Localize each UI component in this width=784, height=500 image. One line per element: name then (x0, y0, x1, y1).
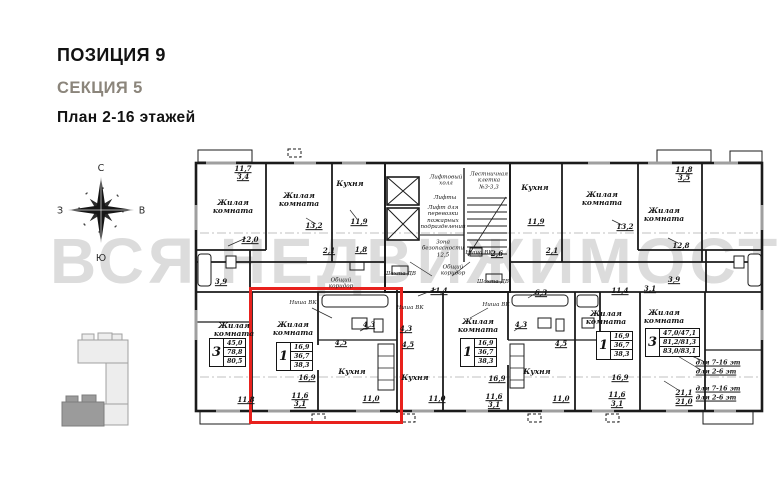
plan-label: для 7-16 эт (696, 387, 741, 394)
apartment-area-value: 45,0 (224, 339, 245, 348)
plan-label: Лифты (434, 195, 457, 201)
floors-title: План 2-16 этажей (57, 109, 196, 127)
plan-label: Лифтовый холл (430, 175, 463, 188)
apartment-area-value: 36,7 (475, 348, 496, 357)
plan-label: 21,1 (675, 389, 692, 397)
apartment-info-table: 116,936,738,3 (596, 331, 633, 360)
apartment-area-value: 38,3 (475, 357, 496, 365)
plan-label: Жилая комната (644, 207, 684, 224)
plan-label: Жилая комната (586, 310, 626, 327)
watermark-text: ВСЯ НЕДВИЖИМОСТЬ (50, 224, 780, 298)
plan-label: 3,1 (611, 400, 623, 408)
apartment-rooms-count: 3 (646, 329, 660, 356)
apartment-info-table: 116,936,738,3 (460, 338, 497, 367)
plan-label: 16,9 (488, 375, 505, 383)
apartment-area-value: 78,8 (224, 348, 245, 357)
plan-label: 11,7 (234, 165, 251, 173)
compass-east-label: В (139, 206, 146, 217)
compass-west-label: З (57, 206, 63, 217)
plan-label: 3,4 (237, 173, 249, 181)
apartment-info-table: 345,078,880,5 (209, 338, 246, 367)
apartment-rooms-count: 1 (461, 339, 475, 366)
apartment-info-table: 347,0/47,181,2/81,383,0/83,1 (645, 328, 700, 357)
plan-label: для 2-6 эт (696, 370, 736, 377)
plan-label: 4,3 (515, 321, 527, 329)
plan-label: Лестничная клетка №3-3,3 (470, 171, 508, 190)
apartment-area-value: 80,5 (224, 357, 245, 365)
plan-label: 21,0 (675, 398, 692, 406)
plan-label: для 7-16 эт (696, 361, 741, 368)
plan-label: Жилая комната (582, 191, 622, 208)
plan-label: 11,6 (485, 393, 502, 401)
plan-label: Кухня (336, 180, 363, 188)
plan-label: Кухня (523, 368, 550, 376)
plan-label: 11,0 (428, 395, 445, 403)
plan-label: для 2-6 эт (696, 396, 736, 403)
plan-label: Жилая комната (279, 192, 319, 209)
section-title: СЕКЦИЯ 5 (57, 79, 143, 98)
apartment-area-value: 36,7 (611, 341, 632, 350)
plan-label: 11,0 (552, 395, 569, 403)
plan-label: Ниша ВК (482, 302, 509, 308)
plan-label: Жилая комната (213, 199, 253, 216)
apartment-area-value: 16,9 (611, 332, 632, 341)
apartment-area-value: 16,9 (475, 339, 496, 348)
apartment-area-value: 81,2/81,3 (660, 338, 699, 347)
site-plan-current-section (62, 402, 104, 426)
apartment-area-value: 47,0/47,1 (660, 329, 699, 338)
apartment-rooms-count: 3 (210, 339, 224, 366)
plan-label: Кухня (401, 374, 428, 382)
apartment-area-value: 38,3 (611, 350, 632, 358)
compass-north-label: С (98, 163, 105, 174)
position-title: ПОЗИЦИЯ 9 (57, 45, 166, 66)
plan-label: 4,5 (555, 340, 567, 348)
plan-label: 3,5 (678, 174, 690, 182)
plan-label: 16,9 (611, 374, 628, 382)
compass-diagonal-star (90, 199, 113, 222)
apartment-area-value: 83,0/83,1 (660, 347, 699, 355)
plan-label: 3,1 (488, 401, 500, 409)
plan-label: Жилая комната (644, 309, 684, 326)
apartment-rooms-count: 1 (597, 332, 611, 359)
screenshot-root: ПОЗИЦИЯ 9 СЕКЦИЯ 5 План 2-16 этажей ВСЯ … (0, 0, 784, 500)
plan-label: 4,5 (402, 341, 414, 349)
plan-label: Кухня (521, 184, 548, 192)
plan-label: 11,8 (675, 166, 692, 174)
plan-label: Жилая комната (458, 318, 498, 335)
selected-apartment-highlight[interactable] (249, 287, 403, 424)
plan-label: 11,6 (608, 391, 625, 399)
